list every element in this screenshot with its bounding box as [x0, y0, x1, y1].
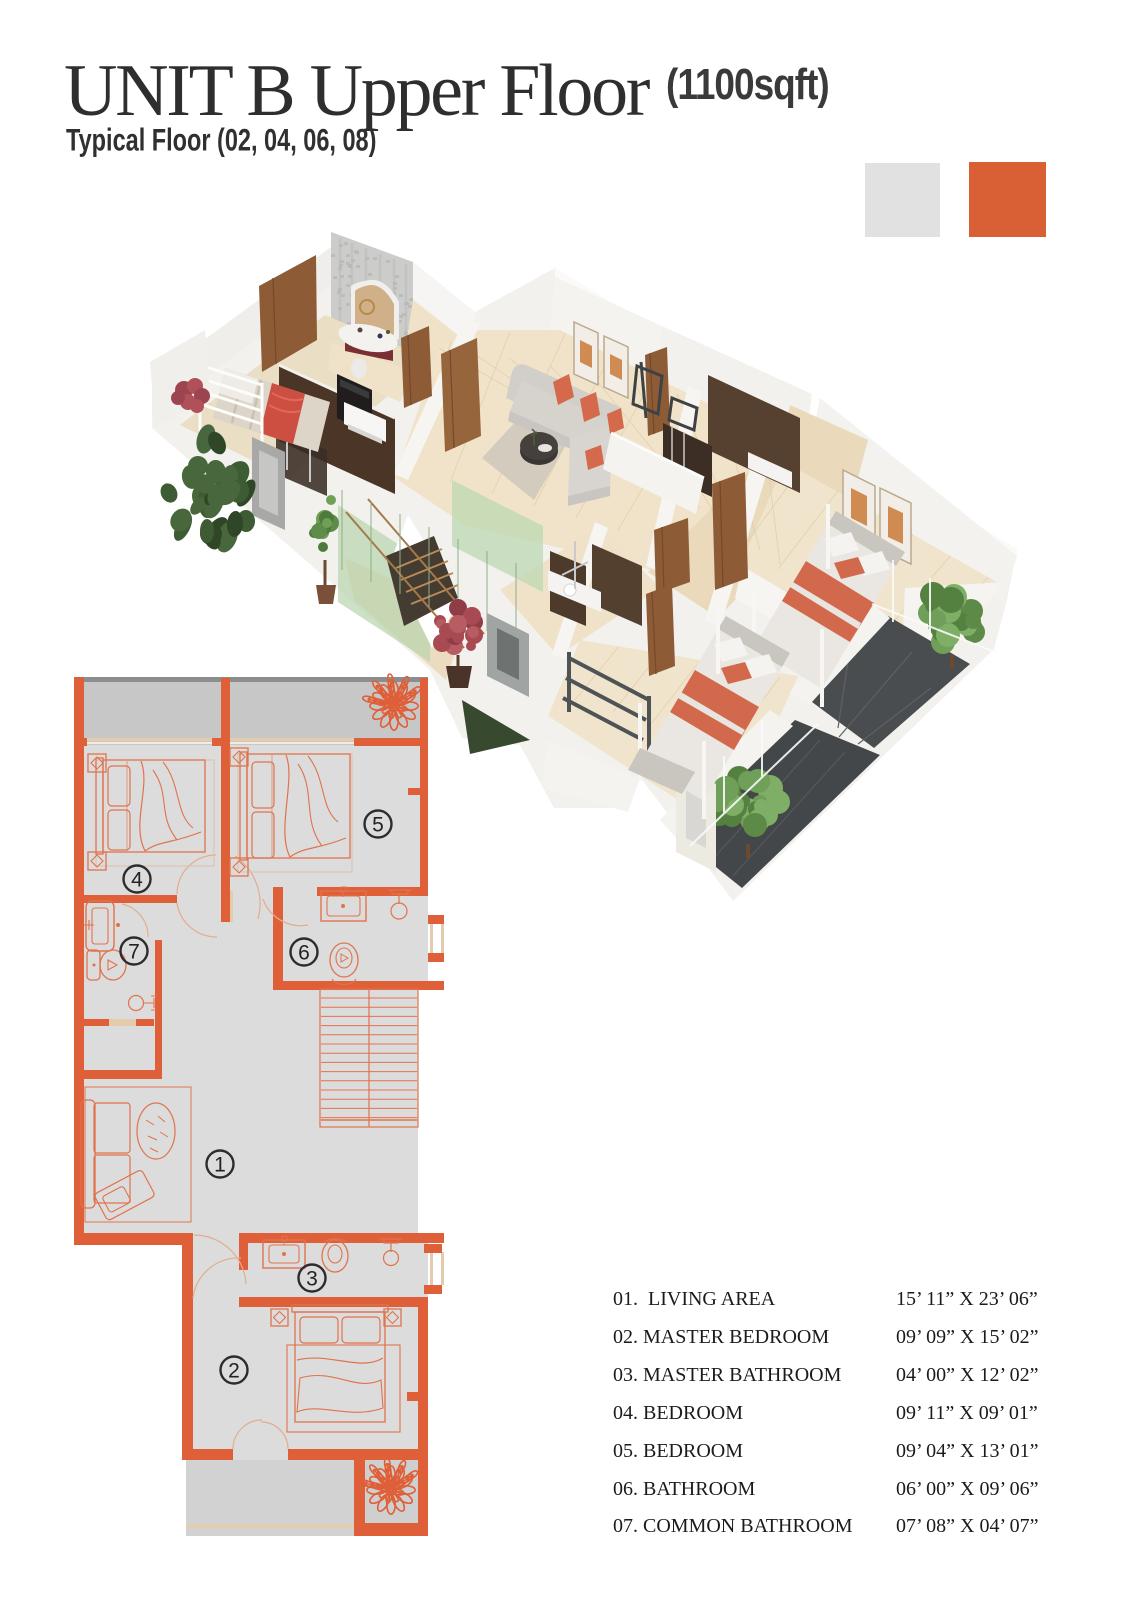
svg-text:6: 6	[298, 942, 310, 965]
svg-text:2: 2	[228, 1360, 240, 1383]
svg-text:4: 4	[131, 869, 143, 892]
svg-text:3: 3	[306, 1268, 318, 1291]
svg-text:5: 5	[372, 814, 384, 837]
svg-text:1: 1	[214, 1154, 226, 1177]
svg-text:7: 7	[128, 941, 140, 964]
